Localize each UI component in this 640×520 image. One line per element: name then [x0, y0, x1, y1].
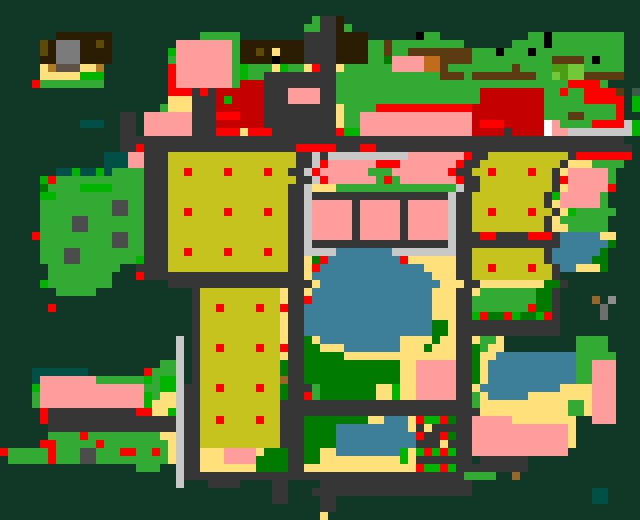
pixel-town-map-canvas[interactable] — [0, 0, 640, 520]
town-map-screen — [0, 0, 640, 520]
